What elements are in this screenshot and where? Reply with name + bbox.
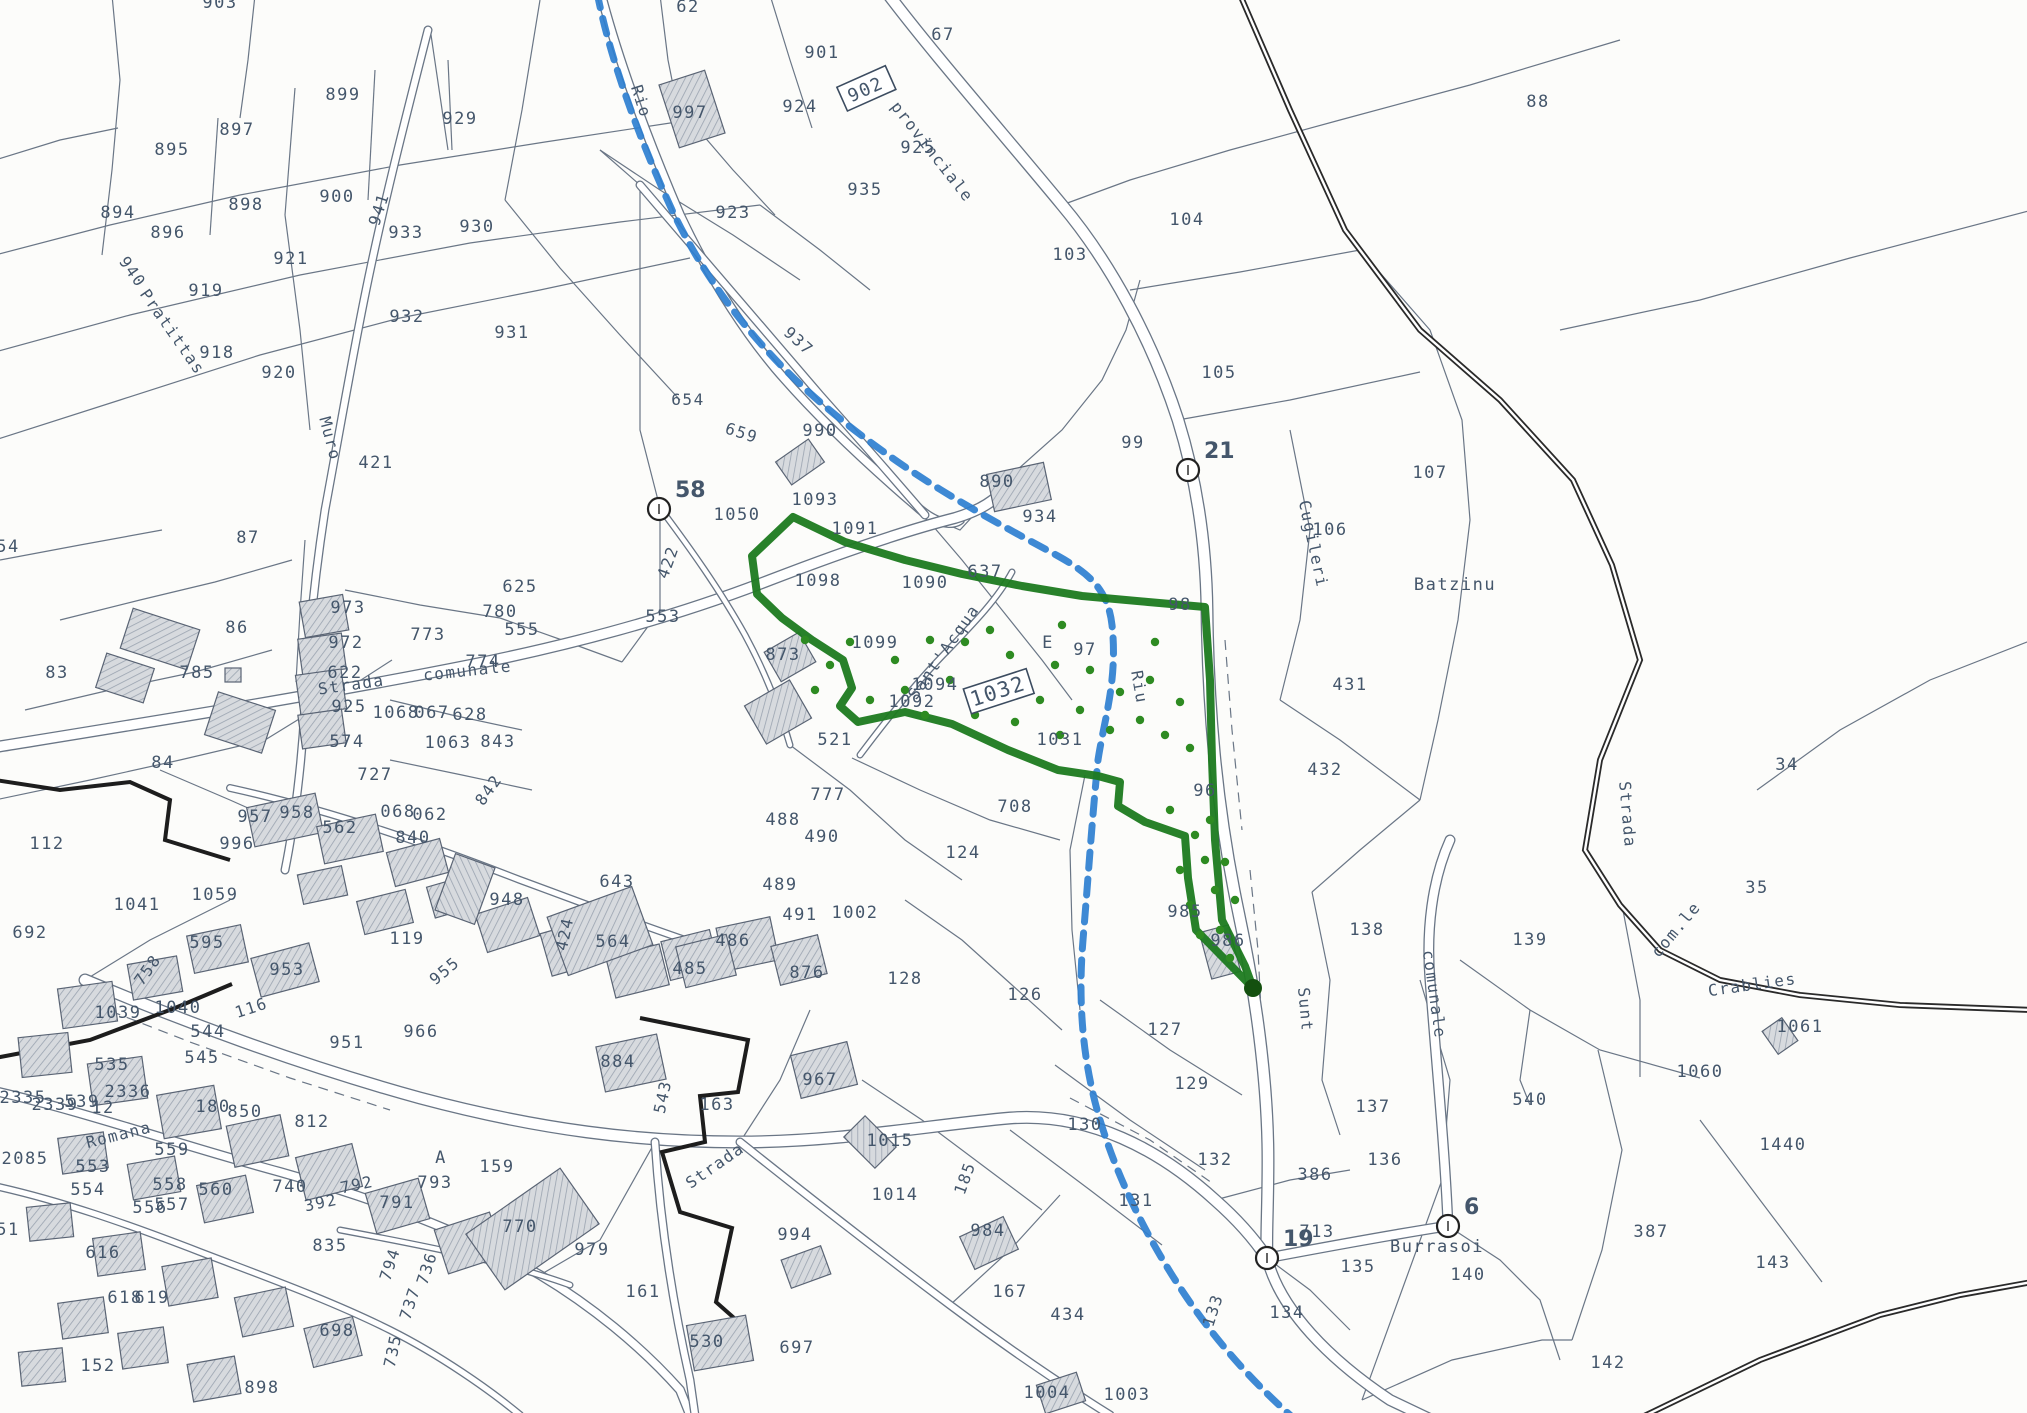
- parcel-label: 900: [319, 187, 354, 207]
- parcel-label: 138: [1349, 920, 1384, 940]
- parcel-label: 986: [1210, 931, 1245, 951]
- tree-dot: [1151, 638, 1159, 646]
- heavy-road-1: [1640, 1282, 2027, 1413]
- parcel-label: 934: [1022, 507, 1057, 527]
- parcel-label: 134: [1269, 1303, 1304, 1323]
- parcel-label: 791: [379, 1193, 414, 1213]
- parcel-label: Batzinu: [1414, 575, 1496, 595]
- buildings: [18, 70, 1798, 1413]
- building: [96, 653, 155, 703]
- parcel-label: 996: [219, 834, 254, 854]
- tree-dot: [926, 636, 934, 644]
- parcel-line: [390, 760, 532, 790]
- parcel-label: 553: [75, 1157, 110, 1177]
- parcel-label: 973: [330, 598, 365, 618]
- parcel-label: 951: [329, 1033, 364, 1053]
- tree-dot: [801, 636, 809, 644]
- parcel-label: 920: [261, 363, 296, 383]
- parcel-line: [1560, 210, 2027, 330]
- parcel-line: [1062, 40, 1620, 205]
- parcel-line: [760, 205, 870, 290]
- parcel-label: 812: [294, 1112, 329, 1132]
- parcel-line: [60, 560, 292, 620]
- parcel-line: [285, 215, 310, 430]
- parcel-line: [1622, 905, 1640, 1077]
- parcel-label: 898: [228, 195, 263, 215]
- parcel-label: 923: [715, 203, 750, 223]
- parcel-label: 884: [600, 1052, 635, 1072]
- parcel-label: 985: [1167, 902, 1202, 922]
- tree-dot: [1231, 896, 1239, 904]
- parcel-label: 161: [625, 1282, 660, 1302]
- parcel-label: 143: [1755, 1253, 1790, 1273]
- road-name-label: com.le: [1647, 898, 1704, 961]
- parcel-label: 773: [410, 625, 445, 645]
- parcel-line: [1280, 430, 1310, 700]
- parcel-label: 1004: [1024, 1383, 1071, 1403]
- parcel-label: 979: [574, 1240, 609, 1260]
- tree-dot: [1076, 706, 1084, 714]
- parcel-label: 894: [100, 203, 135, 223]
- parcel-label: 558: [152, 1175, 187, 1195]
- parcel-label: 387: [1633, 1222, 1668, 1242]
- parcel-label: 84: [151, 753, 174, 773]
- parcel-label: 136: [1367, 1150, 1402, 1170]
- building: [781, 1246, 831, 1289]
- road-name-label: 737: [396, 1284, 424, 1322]
- parcel-label: 103: [1052, 245, 1087, 265]
- tree-dot: [1201, 856, 1209, 864]
- parcel-label: 966: [403, 1022, 438, 1042]
- building: [234, 1287, 293, 1337]
- parcel-label: 540: [1512, 1090, 1547, 1110]
- parcel-line: [640, 185, 660, 508]
- parcel-label: 068: [380, 802, 415, 822]
- parcel-label: 740: [272, 1177, 307, 1197]
- parcel-label: 107: [1412, 463, 1447, 483]
- parcel-label: A: [435, 1148, 447, 1168]
- survey-marker-label: 19: [1283, 1227, 1314, 1252]
- parcel-line: [210, 118, 218, 235]
- road-fill-provinciale: [885, 0, 1268, 1258]
- tree-dot: [866, 696, 874, 704]
- parcel-label: 643: [599, 872, 634, 892]
- parcel-label: 628: [452, 705, 487, 725]
- parcel-label: 697: [779, 1338, 814, 1358]
- tree-dot: [1058, 621, 1066, 629]
- parcel-line: [1280, 700, 1420, 800]
- road-name-label: 736: [413, 1249, 441, 1287]
- road-name-label: 955: [426, 953, 464, 989]
- parcel-label: 2339: [32, 1095, 79, 1115]
- road-name-label: 659: [723, 419, 761, 447]
- heavy-roads: [1238, 0, 2027, 1413]
- parcel-label: 932: [389, 307, 424, 327]
- tree-dot: [1166, 806, 1174, 814]
- parcel-label: 625: [502, 577, 537, 597]
- parcel-label: 159: [479, 1157, 514, 1177]
- parcel-label: 86: [225, 618, 248, 638]
- parcel-line: [905, 900, 1062, 1030]
- parcel-label: 890: [979, 472, 1014, 492]
- building: [297, 866, 347, 905]
- tree-dot: [1226, 954, 1234, 962]
- parcel-label: 919: [188, 281, 223, 301]
- parcel-label: 554: [70, 1180, 105, 1200]
- heavy-road-core-1: [1640, 1282, 2027, 1413]
- parcel-label: 925: [331, 697, 366, 717]
- parcel-label: 933: [388, 223, 423, 243]
- parcel-label: 485: [672, 959, 707, 979]
- tree-dot: [986, 626, 994, 634]
- parcel-label: 785: [179, 663, 214, 683]
- parcel-label: 898: [244, 1378, 279, 1398]
- tree-dot: [1191, 831, 1199, 839]
- parcel-label: 1040: [155, 998, 202, 1018]
- parcel-label: 88: [1526, 92, 1549, 112]
- parcel-label: 131: [1118, 1191, 1153, 1211]
- parcel-label: 876: [789, 963, 824, 983]
- tree-dot: [1196, 931, 1204, 939]
- parcel-label: 972: [328, 633, 363, 653]
- building: [357, 889, 414, 934]
- survey-marker-label: 58: [675, 478, 706, 503]
- parcel-label: 434: [1050, 1305, 1085, 1325]
- parcel-label: 126: [1007, 985, 1042, 1005]
- road-casing-road-19-6: [1267, 840, 1450, 1258]
- building: [776, 439, 825, 485]
- parcel-label: 574: [329, 732, 364, 752]
- parcel-line: [345, 590, 500, 618]
- road-name-label: Sunt: [1294, 987, 1317, 1033]
- parcel-label: 67: [931, 25, 954, 45]
- parcel-label: 1068: [373, 703, 420, 723]
- road-casing-rio-track: [600, 0, 960, 523]
- parcel-label: 698: [319, 1321, 354, 1341]
- parcel-label: 793: [417, 1173, 452, 1193]
- parcel-label: 1015: [867, 1131, 914, 1151]
- road-fill-road-south: [1267, 1258, 1432, 1413]
- parcel-label: 835: [312, 1236, 347, 1256]
- building: [225, 668, 241, 682]
- parcel-line: [240, 0, 255, 118]
- road-name-label: 940: [115, 253, 150, 291]
- heavy-road-0: [1238, 0, 2027, 1010]
- road-name-label: 133: [1199, 1291, 1227, 1329]
- parcel-label: 386: [1297, 1165, 1332, 1185]
- parcel-label: 139: [1512, 930, 1547, 950]
- survey-marker-label: 6: [1464, 1195, 1479, 1220]
- parcel-label: 421: [358, 453, 393, 473]
- parcel-label: 530: [689, 1332, 724, 1352]
- parcel-label: 692: [12, 923, 47, 943]
- parcel-label: 967: [802, 1070, 837, 1090]
- parcel-label: 2085: [2, 1149, 49, 1169]
- parcel-label: 777: [810, 785, 845, 805]
- parcel-label: 564: [595, 932, 630, 952]
- parcel-line: [622, 508, 660, 662]
- parcel-line: [0, 128, 118, 160]
- parcel-label: 1002: [832, 903, 879, 923]
- parcel-label: 899: [325, 85, 360, 105]
- parcel-label: 562: [322, 818, 357, 838]
- parcel-line: [505, 0, 540, 200]
- parcel-line: [1312, 800, 1420, 892]
- road-name-label: 543: [650, 1079, 676, 1116]
- parcel-label: 167: [992, 1282, 1027, 1302]
- parcel-label: 83: [45, 663, 68, 683]
- tree-dot: [1136, 716, 1144, 724]
- survey-marker-label: 21: [1204, 439, 1235, 464]
- road-name-label: 842: [471, 771, 506, 809]
- parcel-label: 708: [997, 797, 1032, 817]
- parcel-label: 770: [502, 1217, 537, 1237]
- parcel-label: 152: [80, 1356, 115, 1376]
- building: [58, 1297, 109, 1339]
- parcel-label: 142: [1590, 1353, 1625, 1373]
- building: [18, 1032, 72, 1077]
- tree-dot: [1176, 698, 1184, 706]
- tree-dot: [1221, 858, 1229, 866]
- parcel-label: 840: [395, 828, 430, 848]
- parcel-line: [0, 530, 162, 560]
- building: [26, 1203, 73, 1241]
- parcel-label: 1090: [902, 573, 949, 593]
- parcel-label: 489: [762, 875, 797, 895]
- parcel-label: 105: [1201, 363, 1236, 383]
- parcel-label: 99: [1121, 433, 1144, 453]
- building: [226, 1115, 289, 1168]
- parcel-label: 1060: [1677, 1062, 1724, 1082]
- parcel-line: [1130, 250, 1360, 290]
- tree-dot: [1116, 688, 1124, 696]
- parcel-label: 555: [504, 620, 539, 640]
- parcel-label: 873: [765, 645, 800, 665]
- parcel-label: 491: [782, 905, 817, 925]
- parcel-label: 896: [150, 223, 185, 243]
- parcel-label: 1003: [1104, 1385, 1151, 1405]
- tree-dot: [1211, 886, 1219, 894]
- parcel-label: 921: [273, 249, 308, 269]
- parcel-label: 180: [195, 1097, 230, 1117]
- parcel-label: 544: [190, 1022, 225, 1042]
- parcel-label: 35: [1745, 878, 1768, 898]
- parcel-label: 850: [227, 1102, 262, 1122]
- parcel-label: 1059: [192, 885, 239, 905]
- parcel-line: [505, 200, 680, 400]
- parcel-label: 12: [91, 1098, 114, 1118]
- cadastral-map: 9036290167889979249298998978958948968989…: [0, 0, 2027, 1413]
- parcel-label: 929: [442, 109, 477, 129]
- tree-dot: [1161, 731, 1169, 739]
- parcel-label: 34: [1775, 755, 1798, 775]
- green-end-cap: [1244, 979, 1262, 997]
- tree-dot: [811, 686, 819, 694]
- parcel-label: 062: [412, 805, 447, 825]
- tree-dot: [1206, 816, 1214, 824]
- parcel-label: 990: [802, 421, 837, 441]
- heavy-road-core-0: [1238, 0, 2027, 1010]
- road-name-label: comunale: [422, 656, 513, 684]
- parcel-label: 903: [202, 0, 237, 13]
- parcel-label: 1014: [872, 1185, 919, 1205]
- parcel-label: 535: [94, 1055, 129, 1075]
- parcel-label: 129: [1174, 1074, 1209, 1094]
- tree-dot: [921, 711, 929, 719]
- tree-dot: [1086, 666, 1094, 674]
- tree-dot: [1106, 726, 1114, 734]
- parcel-label: 1061: [1777, 1017, 1824, 1037]
- parcel-label: E: [1042, 633, 1054, 653]
- parcel-label: 140: [1450, 1265, 1485, 1285]
- parcel-label: 545: [184, 1048, 219, 1068]
- parcel-line: [368, 70, 375, 200]
- parcel-label: 104: [1169, 210, 1204, 230]
- parcel-label: 994: [777, 1225, 812, 1245]
- parcel-label: 1440: [1760, 1135, 1807, 1155]
- parcel-line: [1362, 1340, 1572, 1400]
- parcel-label: 490: [804, 827, 839, 847]
- parcel-label: 553: [645, 607, 680, 627]
- parcel-label: 128: [887, 969, 922, 989]
- road-name-label: Strada: [1615, 780, 1640, 848]
- building: [162, 1258, 218, 1306]
- parcel-label: 163: [699, 1095, 734, 1115]
- tree-dot: [1036, 696, 1044, 704]
- parcel-label: 1041: [114, 895, 161, 915]
- parcel-label: 135: [1340, 1257, 1375, 1277]
- parcel-line: [448, 60, 452, 150]
- building: [744, 680, 811, 744]
- parcel-label: 957: [237, 807, 272, 827]
- parcel-label: 948: [489, 890, 524, 910]
- parcel-label: 119: [389, 929, 424, 949]
- parcel-label: 488: [765, 810, 800, 830]
- road-fill-rio-track: [600, 0, 960, 523]
- tree-dot: [1176, 866, 1184, 874]
- parcel-line-dashed: [1225, 640, 1242, 830]
- parcel-line: [430, 28, 448, 150]
- tree-dot: [826, 661, 834, 669]
- parcel-label: 486: [715, 931, 750, 951]
- parcel-label: 87: [236, 528, 259, 548]
- parcel-label: 897: [219, 120, 254, 140]
- parcel-label: 431: [1332, 675, 1367, 695]
- parcel-label: 931: [494, 323, 529, 343]
- parcel-label: 51: [0, 1220, 20, 1240]
- parcel-line: [1572, 1050, 1622, 1340]
- parcel-label: 130: [1067, 1115, 1102, 1135]
- parcel-label: 432: [1307, 760, 1342, 780]
- parcel-label: 930: [459, 217, 494, 237]
- parcel-label: 619: [134, 1288, 169, 1308]
- parcel-label: 1031: [1037, 730, 1084, 750]
- parcel-label: 1098: [795, 571, 842, 591]
- tree-dot: [891, 656, 899, 664]
- road-name-label: 185: [950, 1159, 979, 1197]
- parcel-label: 595: [189, 933, 224, 953]
- parcel-label: 843: [480, 732, 515, 752]
- parcel-label: 98: [1168, 595, 1191, 615]
- parcel-label: 901: [804, 43, 839, 63]
- parcel-label: 1093: [792, 490, 839, 510]
- parcel-label: 521: [817, 730, 852, 750]
- parcel-label: 54: [0, 537, 20, 557]
- road-name-label: Cugileri: [1295, 498, 1332, 589]
- road-name-label: 116: [232, 994, 270, 1022]
- parcel-label: 637: [967, 562, 1002, 582]
- parcel-line: [790, 745, 962, 880]
- parcel-label: 727: [357, 765, 392, 785]
- road-name-label: comunale: [1419, 949, 1450, 1040]
- parcel-label: 132: [1197, 1150, 1232, 1170]
- parcel-line: [1360, 250, 1470, 800]
- parcel-label: 97: [1073, 640, 1096, 660]
- parcel-label: 560: [198, 1180, 233, 1200]
- tree-dot: [1006, 651, 1014, 659]
- road-name-label: 422: [653, 543, 682, 581]
- tree-dot: [1011, 718, 1019, 726]
- parcel-label: 997: [672, 103, 707, 123]
- road-name-label: 654: [671, 390, 704, 409]
- road-fill-road-19-6: [1267, 840, 1450, 1258]
- parcel-label: 984: [970, 1221, 1005, 1241]
- parcel-line: [1100, 1000, 1242, 1095]
- road-name-label: 794: [376, 1245, 404, 1283]
- parcel-label: 067: [414, 703, 449, 723]
- parcel-label: 1039: [95, 1003, 142, 1023]
- parcel-label: 137: [1355, 1097, 1390, 1117]
- parcel-label: 1099: [852, 633, 899, 653]
- parcel-line: [285, 88, 295, 215]
- building: [187, 1356, 241, 1402]
- parcel-label: 953: [269, 960, 304, 980]
- parcel-label: 958: [279, 803, 314, 823]
- map-canvas: 9036290167889979249298998978958948968989…: [0, 0, 2027, 1413]
- parcel-line: [0, 740, 265, 800]
- parcel-line: [600, 150, 640, 185]
- tree-dot: [1186, 744, 1194, 752]
- road-name-label: Crablies: [1707, 969, 1798, 1000]
- road-name-label: 735: [380, 1333, 406, 1370]
- parcel-label: 559: [154, 1140, 189, 1160]
- parcel-label: 1050: [714, 505, 761, 525]
- parcel-label: 96: [1193, 781, 1216, 801]
- parcel-label: Burrasoi: [1390, 1237, 1484, 1257]
- parcel-label: 62: [676, 0, 699, 17]
- parcel-label: 556: [132, 1198, 167, 1218]
- building: [18, 1348, 65, 1386]
- road-name-label: Riu: [1127, 669, 1152, 705]
- parcel-label: 124: [945, 843, 980, 863]
- parcel-label: 616: [85, 1243, 120, 1263]
- parcel-label: 935: [847, 180, 882, 200]
- road-casing-road-south: [1267, 1258, 1432, 1413]
- parcel-label: 127: [1147, 1020, 1182, 1040]
- parcel-label: 1063: [425, 733, 472, 753]
- parcel-line: [1460, 960, 1700, 1078]
- parcel-label: 1091: [832, 519, 879, 539]
- parcel-label: 780: [482, 602, 517, 622]
- building: [120, 608, 200, 670]
- parcel-label: 895: [154, 140, 189, 160]
- parcel-label: 924: [782, 97, 817, 117]
- tree-dot: [1051, 661, 1059, 669]
- parcel-label: 112: [29, 834, 64, 854]
- parcel-line: [1008, 280, 1140, 478]
- building: [118, 1327, 169, 1369]
